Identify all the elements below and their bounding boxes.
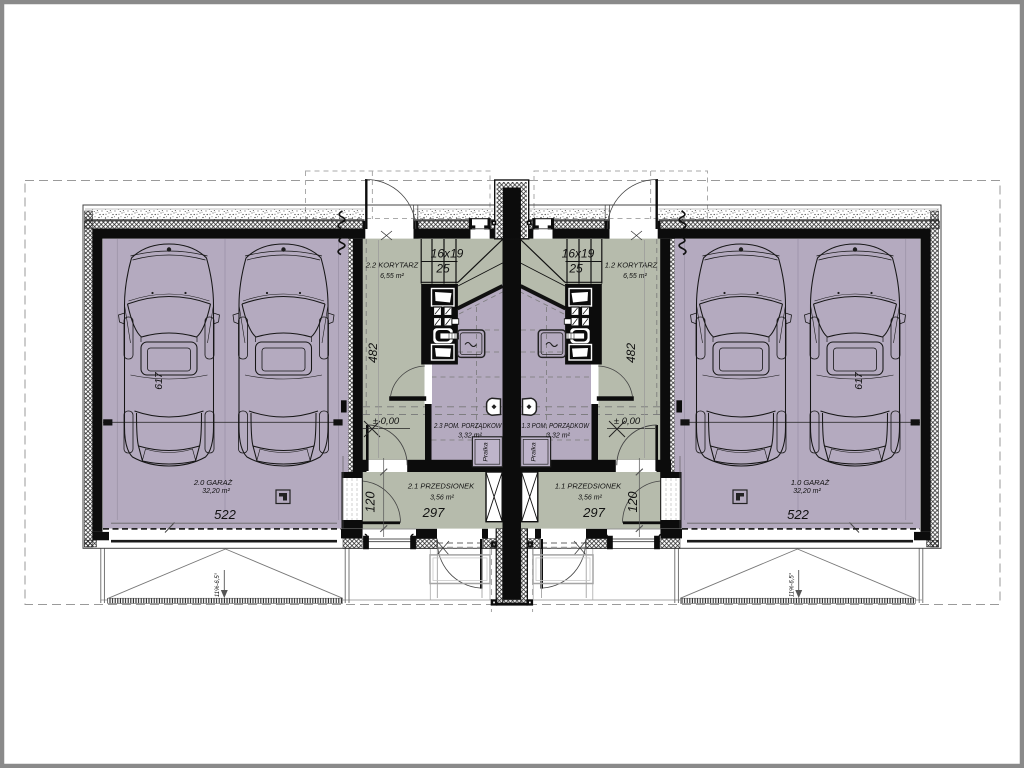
svg-text:32,20 m²: 32,20 m²	[202, 488, 230, 495]
svg-text:25: 25	[435, 262, 450, 276]
svg-text:2.3 POM. PORZĄDKOW: 2.3 POM. PORZĄDKOW	[433, 423, 503, 430]
svg-text:522: 522	[214, 507, 236, 522]
svg-text:25: 25	[568, 262, 583, 276]
svg-text:522: 522	[787, 507, 809, 522]
svg-text:16x19: 16x19	[562, 247, 595, 261]
svg-text:16x19: 16x19	[431, 247, 464, 261]
svg-text:617: 617	[853, 371, 865, 390]
svg-text:Pralka: Pralka	[483, 442, 490, 461]
svg-text:3,32 m²: 3,32 m²	[458, 433, 482, 440]
svg-text:± 0,00: ± 0,00	[373, 416, 400, 427]
svg-text:482: 482	[366, 343, 380, 363]
svg-text:3,32 m²: 3,32 m²	[546, 433, 570, 440]
svg-text:2.2 KORYTARZ: 2.2 KORYTARZ	[365, 261, 419, 270]
svg-text:120: 120	[626, 492, 640, 513]
svg-text:11%-6,5°: 11%-6,5°	[790, 572, 796, 597]
svg-text:1.3 POM. PORZĄDKOW: 1.3 POM. PORZĄDKOW	[522, 423, 591, 430]
svg-text:2.0 GARAŻ: 2.0 GARAŻ	[193, 478, 233, 487]
svg-text:3,56 m²: 3,56 m²	[430, 495, 454, 502]
svg-text:6,55 m²: 6,55 m²	[380, 273, 404, 280]
svg-text:Pralka: Pralka	[531, 442, 538, 461]
svg-text:1.2 KORYTARZ: 1.2 KORYTARZ	[605, 261, 658, 270]
svg-text:2.1 PRZEDSIONEK: 2.1 PRZEDSIONEK	[407, 482, 475, 491]
svg-text:1.1 PRZEDSIONEK: 1.1 PRZEDSIONEK	[555, 482, 622, 491]
svg-text:3,56 m²: 3,56 m²	[578, 495, 602, 502]
svg-text:11%-6,5°: 11%-6,5°	[215, 572, 221, 597]
svg-text:± 0,00: ± 0,00	[614, 416, 641, 427]
svg-text:617: 617	[153, 371, 165, 390]
svg-text:32,20 m²: 32,20 m²	[793, 488, 821, 495]
svg-text:1.0 GARAŻ: 1.0 GARAŻ	[791, 478, 830, 487]
svg-text:6,55 m²: 6,55 m²	[623, 273, 647, 280]
svg-text:297: 297	[422, 505, 445, 520]
svg-text:297: 297	[582, 505, 605, 520]
svg-text:482: 482	[624, 343, 638, 363]
svg-text:120: 120	[364, 492, 378, 513]
